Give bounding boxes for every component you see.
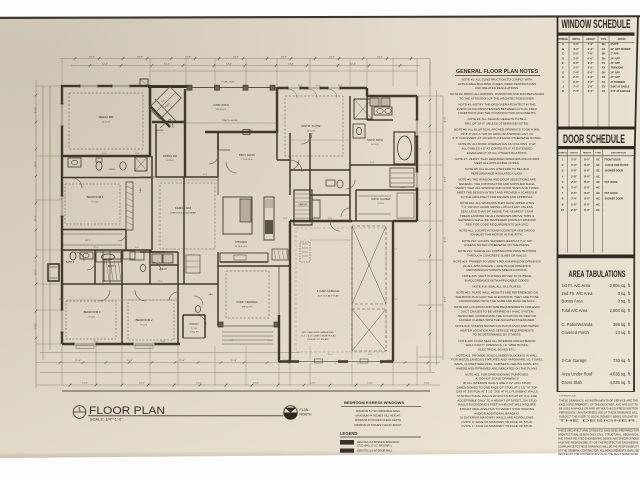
svg-text:7'-4": 7'-4"	[573, 89, 580, 93]
svg-text:388 sq. ft.: 388 sq. ft.	[613, 322, 631, 327]
svg-text:9' CLG.: 9' CLG.	[141, 325, 148, 327]
svg-text:HALL: HALL	[208, 293, 214, 296]
svg-text:TRANSOM: TRANSOM	[611, 67, 623, 70]
svg-text:FX: FX	[602, 80, 606, 84]
svg-text:NOTE #16: SEAL ALL SILL PLATES: NOTE #16: SEAL ALL SILL PLATES.	[472, 284, 521, 288]
svg-text:12'-4": 12'-4"	[417, 199, 422, 201]
svg-text:10'-8": 10'-8"	[443, 237, 445, 243]
svg-text:VERIFIED BY THE CONTRACTORS US: VERIFIED BY THE CONTRACTORS USING THE RE…	[558, 453, 639, 456]
svg-text:6'-0": 6'-0"	[588, 56, 595, 60]
svg-text:24'-8": 24'-8"	[377, 57, 383, 59]
svg-text:ELECTRICAL BOXES ETC.: ELECTRICAL BOXES ETC.	[478, 347, 515, 351]
svg-text:7'-4": 7'-4"	[573, 70, 580, 74]
svg-text:ENTRY: ENTRY	[156, 130, 164, 132]
svg-text:C. Patio/Veranda: C. Patio/Veranda	[562, 322, 594, 327]
svg-text:BEDROOM 2: BEDROOM 2	[136, 318, 153, 322]
svg-text:12'-4": 12'-4"	[338, 85, 343, 87]
svg-text:12'-4": 12'-4"	[328, 218, 333, 220]
svg-text:DENOTES 2x6 INTERIOR WALL: DENOTES 2x6 INTERIOR WALL	[357, 450, 393, 453]
svg-text:10' CLG.: 10' CLG.	[102, 122, 111, 124]
svg-text:WHERE NIGHT/FRAMES ARE INDICAT: WHERE NIGHT/FRAMES ARE INDICATED ON THE …	[456, 366, 538, 370]
svg-text:Total A/C Area: Total A/C Area	[562, 308, 589, 313]
svg-text:HEIGHT: HEIGHT	[586, 39, 595, 41]
svg-text:7'-0": 7'-0"	[588, 52, 595, 56]
svg-text:12'-4": 12'-4"	[370, 162, 375, 164]
svg-text:PER MANUFACTURER'S SPECIFICATI: PER MANUFACTURER'S SPECIFICATIONS.	[466, 268, 527, 272]
svg-text:FLOOR PLAN: FLOOR PLAN	[89, 405, 165, 417]
svg-text:24'-8": 24'-8"	[233, 57, 239, 59]
svg-text:W.I.C.: W.I.C.	[85, 240, 91, 242]
svg-text:Area Under Roof: Area Under Roof	[562, 372, 594, 377]
svg-text:AT DORMER: AT DORMER	[611, 81, 626, 84]
svg-text:AREA TABULATIONS: AREA TABULATIONS	[569, 269, 626, 279]
svg-text:12'-4": 12'-4"	[102, 64, 108, 66]
svg-text:SC: SC	[596, 163, 600, 167]
svg-text:SUBJECT THE USER TO LEGAL REME: SUBJECT THE USER TO LEGAL REMEDY BEING S…	[559, 415, 638, 418]
svg-text:12'-4": 12'-4"	[161, 341, 166, 343]
svg-text:3'-0": 3'-0"	[571, 163, 578, 167]
svg-text:TO BE DETERMINED BY OTHERS.: TO BE DETERMINED BY OTHERS.	[473, 333, 522, 337]
svg-text:SH: SH	[602, 70, 606, 74]
svg-text:12'-4": 12'-4"	[368, 354, 373, 356]
svg-text:12'-4": 12'-4"	[401, 187, 406, 189]
svg-text:HC: HC	[596, 191, 600, 195]
svg-text:ARCHITECTURAL DESIGN ONLY. CI: ARCHITECTURAL DESIGN ONLY. CIVIL, STRUCT…	[558, 433, 640, 436]
svg-text:BE USED IN WHOLE OR PART WITHO: BE USED IN WHOLE OR PART WITHOUT HIS EXP…	[559, 407, 638, 410]
svg-text:4,035 sq. ft.: 4,035 sq. ft.	[610, 380, 631, 385]
svg-text:3-Car Garage: 3-Car Garage	[562, 358, 588, 363]
svg-text:DOOR SCHEDULE: DOOR SCHEDULE	[563, 134, 625, 146]
svg-text:10' TILE CLG.: 10' TILE CLG.	[235, 246, 248, 248]
svg-text:THESE ARCHITECTURAL DRAWINGS H: THESE ARCHITECTURAL DRAWINGS HAVE BEEN P…	[558, 430, 639, 433]
svg-text:SYMBOL: SYMBOL	[558, 39, 568, 41]
svg-text:F: F	[562, 66, 564, 70]
svg-text:BEDROOM EGRESS WINDOWS: BEDROOM EGRESS WINDOWS	[344, 400, 404, 405]
svg-text:UNLESS NOTED OTHERWISE ON THE: UNLESS NOTED OTHERWISE ON THE PLANS.	[464, 243, 530, 247]
svg-text:THESE DRAWINGS, AS INSTRUMENTS: THESE DRAWINGS, AS INSTRUMENTS OF SERVIC…	[559, 400, 638, 403]
svg-text:12'-4": 12'-4"	[316, 85, 321, 87]
svg-text:EAVES AND 0" AT ALL OTHER LOC: EAVES AND 0" AT ALL OTHER LOCATIONS.	[467, 151, 528, 155]
svg-text:8'-0": 8'-0"	[584, 208, 591, 212]
svg-text:HC: HC	[596, 197, 600, 201]
svg-text:12'-4": 12'-4"	[229, 340, 234, 342]
svg-text:7' CEIL. HGT.: 7' CEIL. HGT.	[221, 82, 235, 84]
svg-text:DINING RM: DINING RM	[163, 154, 177, 158]
svg-text:14'-0": 14'-0"	[253, 383, 259, 385]
svg-text:12'-6": 12'-6"	[35, 215, 37, 221]
svg-text:12'-4": 12'-4"	[298, 85, 303, 87]
svg-text:8'-0": 8'-0"	[584, 174, 591, 178]
svg-text:SHOWER DOOR: SHOWER DOOR	[605, 170, 624, 173]
svg-text:2'-6": 2'-6"	[571, 202, 578, 206]
svg-text:AND RELATED REGULATIONS.: AND RELATED REGULATIONS.	[475, 86, 519, 90]
svg-text:FAMILY RM: FAMILY RM	[175, 206, 191, 210]
svg-text:THE DESIGNER.: THE DESIGNER.	[559, 419, 639, 422]
svg-text:BKFT. NOOK: BKFT. NOOK	[239, 153, 255, 157]
svg-text:2" APP: 2" APP	[611, 53, 619, 56]
svg-text:2'-0": 2'-0"	[571, 191, 578, 195]
svg-text:9' CLG.: 9' CLG.	[378, 203, 385, 205]
svg-text:6'-8" FOR EVERY 24" OF WIDTH U: 6'-8" FOR EVERY 24" OF WIDTH UNLESS OTHE…	[453, 136, 542, 140]
svg-text:SH: SH	[602, 56, 606, 60]
svg-text:REP. FOR CODE REQUIREMENTS (WA: REP. FOR CODE REQUIREMENTS (WA-2XC)	[466, 222, 529, 226]
svg-text:11'-0" CLG. AT 4" SLAB: 11'-0" CLG. AT 4" SLAB	[317, 295, 339, 298]
svg-text:14'-0": 14'-0"	[424, 383, 430, 385]
svg-text:2'-6": 2'-6"	[571, 180, 578, 184]
svg-text:12'-4": 12'-4"	[393, 249, 398, 251]
svg-text:THROUGH CONCRETE SLABS OR WALL: THROUGH CONCRETE SLABS OR WALLS.	[467, 253, 528, 257]
svg-text:WINDOW SCHEDULE: WINDOW SCHEDULE	[562, 19, 631, 31]
svg-text:0 sq. ft.: 0 sq. ft.	[618, 299, 631, 304]
svg-text:SC: SC	[596, 169, 600, 173]
svg-text:COORDINATED WITH THE SAME AND: COORDINATED WITH THE SAME AND BAND DETAI…	[459, 299, 536, 303]
svg-text:BEDROOM 3: BEDROOM 3	[84, 310, 101, 314]
svg-text:12'-4": 12'-4"	[226, 64, 232, 66]
svg-text:10'-8": 10'-8"	[443, 297, 445, 303]
svg-text:24'-8": 24'-8"	[329, 57, 335, 59]
svg-text:5'-0": 5'-0"	[588, 66, 595, 70]
svg-text:10' CLG.: 10' CLG.	[307, 131, 316, 133]
svg-text:MSTR. BATH: MSTR. BATH	[367, 138, 383, 142]
svg-text:12'-6": 12'-6"	[35, 161, 37, 167]
svg-text:12'-4": 12'-4"	[417, 149, 422, 151]
svg-text:BATH 3: BATH 3	[66, 261, 75, 264]
svg-text:12'-4": 12'-4"	[59, 299, 64, 301]
svg-text:3-CAR GARAGE: 3-CAR GARAGE	[317, 289, 340, 293]
svg-text:MSTR. SUITE: MSTR. SUITE	[301, 124, 320, 128]
svg-text:MINIMUM 24 INCHES CLEAR HEIGHT: MINIMUM 24 INCHES CLEAR HEIGHT	[354, 423, 402, 427]
svg-text:2'-0": 2'-0"	[573, 75, 580, 79]
svg-text:MIN. CLEAR INSIDE GARAGE DIMS.: MIN. CLEAR INSIDE GARAGE DIMS.	[302, 331, 335, 334]
svg-text:3'-0": 3'-0"	[573, 52, 580, 56]
svg-text:24" APP: 24" APP	[611, 62, 621, 65]
svg-text:PERMISSION. UNAUTHORIZED USE: PERMISSION. UNAUTHORIZED USE OF THESE DR…	[559, 411, 639, 414]
svg-text:MSTR. CLOSET: MSTR. CLOSET	[371, 197, 391, 201]
svg-text:12'-4": 12'-4"	[135, 247, 140, 249]
svg-text:12'-4": 12'-4"	[283, 218, 288, 220]
svg-text:12'-4": 12'-4"	[393, 299, 398, 301]
svg-text:SYMBOL: SYMBOL	[558, 153, 568, 155]
svg-text:1st Fr. A/C Area: 1st Fr. A/C Area	[562, 283, 591, 288]
svg-text:2'-0": 2'-0"	[573, 80, 580, 84]
svg-text:CONDITIONS AND THE CONSTRUCTIO: CONDITIONS AND THE CONSTRUCTION DOCUMENT…	[458, 111, 537, 115]
svg-text:24&#39;-0&#34;: 24&#39;-0&#34;	[222, 120, 237, 122]
svg-text:8'-0": 8'-0"	[584, 202, 591, 206]
svg-text:12'-4": 12'-4"	[135, 153, 140, 155]
svg-text:379 SQ. FT.: 379 SQ. FT.	[216, 109, 227, 111]
svg-text:PLAN: PLAN	[300, 408, 309, 412]
svg-text:FX: FX	[602, 66, 606, 70]
svg-text:D: D	[562, 56, 564, 60]
svg-text:12'-4": 12'-4"	[350, 64, 356, 66]
svg-text:10'-8": 10'-8"	[443, 117, 445, 123]
svg-text:12'-4": 12'-4"	[94, 341, 99, 343]
svg-text:9' CLG.: 9' CLG.	[89, 317, 96, 319]
svg-text:OPEN TILE & 20' TALL/BEAM: OPEN TILE & 20' TALL/BEAM	[170, 212, 196, 215]
svg-text:8'-0": 8'-0"	[584, 186, 591, 190]
svg-text:TO THE ATTENTION OF THE ARCHIT: TO THE ATTENTION OF THE ARCHITECT/DESIGN…	[459, 96, 534, 100]
svg-text:3'-0": 3'-0"	[571, 158, 578, 162]
svg-text:UTILITY: UTILITY	[159, 269, 168, 271]
svg-text:HC: HC	[596, 180, 600, 184]
svg-text:8'-0": 8'-0"	[584, 180, 591, 184]
svg-text:14'-0": 14'-0"	[139, 383, 145, 385]
svg-text:HC: HC	[596, 174, 600, 178]
svg-text:SC: SC	[596, 158, 600, 162]
svg-text:IN ACCORDANCE WITH APPLICABLE: IN ACCORDANCE WITH APPLICABLE CODES.	[465, 278, 530, 282]
svg-text:2'-0": 2'-0"	[588, 89, 595, 93]
svg-text:PERFORMANCE INSULATED GLASS.: PERFORMANCE INSULATED GLASS.	[471, 171, 524, 175]
svg-text:7' CLG.: 7' CLG.	[191, 328, 198, 330]
svg-text:12'-4": 12'-4"	[158, 281, 163, 283]
svg-text:THAT AT GABLE: THAT AT GABLE	[611, 86, 630, 89]
svg-text:7'-4": 7'-4"	[573, 85, 580, 89]
svg-text:12'-4": 12'-4"	[288, 64, 294, 66]
svg-text:OF THE GENERAL CONTRACTOR. AL: OF THE GENERAL CONTRACTOR. ALL MEASUREME…	[558, 449, 639, 452]
svg-text:FX: FX	[602, 85, 606, 89]
svg-text:FX: FX	[602, 61, 606, 65]
svg-text:9'-0": 9'-0"	[588, 61, 595, 65]
svg-text:BATH 2: BATH 2	[108, 265, 117, 268]
svg-text:2,804 sq. ft.: 2,804 sq. ft.	[610, 283, 631, 288]
svg-text:8'-0": 8'-0"	[584, 169, 591, 173]
svg-text:2'-4": 2'-4"	[571, 197, 578, 201]
svg-text:14'-0": 14'-0"	[196, 383, 202, 385]
svg-text:MIN. OF 10'-0" UNLESS OTHERWIS: MIN. OF 10'-0" UNLESS OTHERWISE NOTED.	[465, 121, 529, 125]
svg-text:CVRD. PATIO: CVRD. PATIO	[213, 104, 229, 107]
svg-text:24'-8": 24'-8"	[281, 57, 287, 59]
svg-text:21'-4" x 31'-8" CLEAR CONCRETE: 21'-4" x 31'-8" CLEAR CONCRETE SLAB	[301, 335, 337, 338]
svg-text:9'-0": 9'-0"	[588, 47, 595, 51]
svg-text:12'-4": 12'-4"	[203, 174, 208, 176]
svg-text:GENERAL FLOOR PLAN NOTES: GENERAL FLOOR PLAN NOTES	[456, 69, 539, 75]
svg-text:9'-0": 9'-0"	[588, 75, 595, 79]
svg-text:12'-4": 12'-4"	[102, 153, 107, 155]
svg-text:CVRD. VERANDA: CVRD. VERANDA	[236, 300, 258, 304]
svg-text:FX: FX	[602, 47, 606, 51]
svg-text:12'-6": 12'-6"	[35, 323, 37, 329]
svg-text:MEET ALL APPLICABLE CODES.: MEET ALL APPLICABLE CODES.	[474, 161, 520, 165]
svg-text:FX: FX	[602, 75, 606, 79]
svg-text:COMPLIANCE TO THESE DRAWINGS W: COMPLIANCE TO THESE DRAWINGS WILL BE THE…	[558, 445, 639, 448]
svg-text:3'-0": 3'-0"	[588, 80, 595, 84]
svg-text:14'-0": 14'-0"	[82, 383, 88, 385]
svg-text:AND THE RESPONSIBILITY OF THE: AND THE RESPONSIBILITY OF THE RESPECTIVE…	[558, 441, 639, 444]
svg-text:1 HOUR FIRE RATED: 1 HOUR FIRE RATED	[605, 164, 629, 167]
svg-text:TO THE ARCHITECT FOR REVIEW AN: TO THE ARCHITECT FOR REVIEW AND APPROVAL…	[461, 195, 534, 199]
svg-text:2,804 sq. ft.: 2,804 sq. ft.	[610, 308, 631, 313]
svg-text:HALL: HALL	[139, 187, 142, 193]
svg-text:E: E	[562, 61, 564, 65]
svg-text:11'-4": 11'-4"	[179, 360, 185, 362]
svg-text:2" APP: 2" APP	[611, 43, 619, 46]
svg-text:H: H	[562, 75, 564, 79]
svg-text:MINIMUM 20 INCHES CLEAR DEPTH: MINIMUM 20 INCHES CLEAR DEPTH	[355, 418, 401, 422]
svg-text:10: 10	[561, 208, 565, 212]
svg-text:13 sq. ft.: 13 sq. ft.	[615, 330, 631, 335]
svg-text:FRONT DOOR: FRONT DOOR	[605, 159, 621, 162]
svg-text:24" APP: 24" APP	[611, 71, 621, 74]
svg-text:AND OTHER RELATED ENGINEERING: AND OTHER RELATED ENGINEERING DESIGN ARE…	[558, 437, 639, 440]
svg-text:13 SQ. FT.: 13 SQ. FT.	[189, 332, 199, 334]
svg-text:2'-4": 2'-4"	[571, 186, 578, 190]
svg-text:FX: FX	[602, 89, 606, 93]
svg-text:STUD WALL (3 1/2" MASONRY): STUD WALL (3 1/2" MASONRY)	[357, 444, 392, 447]
svg-text:SH: SH	[602, 52, 606, 56]
svg-text:LEGEND: LEGEND	[340, 431, 357, 436]
svg-text:3'-0": 3'-0"	[573, 61, 580, 65]
svg-text:4,035 sq. ft.: 4,035 sq. ft.	[610, 372, 631, 377]
svg-text:EXCLUSIVE PROPERTY OF THE DESI: EXCLUSIVE PROPERTY OF THE DESIGNER, AND …	[559, 403, 638, 406]
svg-text:EXHAUST FAN MOTOR IN THE ATTIC: EXHAUST FAN MOTOR IN THE ATTIC.	[470, 233, 523, 237]
svg-text:PANTRY: PANTRY	[299, 203, 308, 206]
svg-text:6'-0": 6'-0"	[588, 70, 595, 74]
svg-text:PKT. DOOR: PKT. DOOR	[605, 192, 618, 195]
svg-text:TYPE: TYPE	[595, 153, 601, 155]
svg-text:3'x5' AT GARAGE: 3'x5' AT GARAGE	[611, 90, 631, 93]
svg-text:24" APP: 24" APP	[611, 57, 621, 60]
svg-text:2'-8": 2'-8"	[571, 169, 578, 173]
svg-text:9' CLG.: 9' CLG.	[92, 202, 99, 204]
svg-text:NOTES: NOTES	[618, 39, 626, 41]
svg-text:SHOWER DOOR: SHOWER DOOR	[605, 198, 624, 201]
svg-text:WIDTH: WIDTH	[572, 39, 580, 41]
svg-text:8'-0": 8'-0"	[584, 191, 591, 195]
svg-text:11'-4": 11'-4"	[127, 360, 133, 362]
svg-text:HC: HC	[596, 202, 600, 206]
svg-text:8'-0": 8'-0"	[584, 197, 591, 201]
svg-text:PORCH: PORCH	[190, 323, 199, 326]
svg-text:12'-4": 12'-4"	[59, 199, 64, 201]
svg-text:2nd Flr. A/C Area: 2nd Flr. A/C Area	[562, 291, 594, 296]
svg-text:OVR'S: 1" FACE OF MASONRY TO F: OVR'S: 1" FACE OF MASONRY TO FACE OF STU…	[461, 424, 533, 428]
svg-text:8'-0": 8'-0"	[584, 158, 591, 162]
svg-text:10' CLG.: 10' CLG.	[371, 144, 379, 146]
svg-text:11'-4": 11'-4"	[231, 360, 237, 362]
svg-text:HC: HC	[596, 186, 600, 190]
svg-text:12'-4": 12'-4"	[164, 64, 170, 66]
svg-text:Bonus Area: Bonus Area	[562, 299, 584, 304]
svg-text:14'-0": 14'-0"	[367, 383, 373, 385]
svg-text:COPYRIGHT 2010: COPYRIGHT 2010	[559, 396, 577, 398]
svg-text:730 sq. ft.: 730 sq. ft.	[613, 358, 631, 363]
svg-text:10'-8": 10'-8"	[443, 177, 445, 183]
svg-text:34" APP. DIVIDER: 34" APP. DIVIDER	[611, 48, 631, 51]
svg-text:DESCRIPTION: DESCRIPTION	[611, 153, 626, 155]
svg-text:PWDR: PWDR	[109, 169, 116, 171]
svg-text:12'-6": 12'-6"	[35, 269, 37, 275]
svg-text:HEIGHT: HEIGHT	[583, 153, 592, 155]
svg-text:2'-8": 2'-8"	[571, 174, 578, 178]
svg-text:388 SQ. FT.: 388 SQ. FT.	[242, 307, 253, 309]
svg-text:24'-8": 24'-8"	[137, 57, 143, 59]
svg-text:7' TILE CLG.: 7' TILE CLG.	[241, 159, 253, 161]
svg-text:12'-6": 12'-6"	[35, 107, 37, 113]
svg-text:24'-8": 24'-8"	[89, 57, 95, 59]
svg-text:12'-4": 12'-4"	[248, 130, 253, 132]
svg-text:BEDROOM 5: BEDROOM 5	[87, 195, 104, 199]
svg-text:3'-0": 3'-0"	[588, 85, 595, 89]
svg-text:Covered Porch: Covered Porch	[562, 330, 590, 335]
svg-text:MINIMUM 5.7 SF OPENABLE AREA: MINIMUM 5.7 SF OPENABLE AREA	[356, 409, 400, 413]
svg-text:SCALE: 1/4"=1'-0": SCALE: 1/4"=1'-0"	[90, 417, 123, 422]
svg-text:11'-4": 11'-4"	[75, 360, 81, 362]
svg-text:MAXIMUM 44 INCHES SILL HEIGHT: MAXIMUM 44 INCHES SILL HEIGHT	[356, 414, 401, 418]
svg-text:0 sq. ft.: 0 sq. ft.	[618, 291, 631, 296]
svg-text:3'-0": 3'-0"	[573, 56, 580, 60]
svg-text:7'-0": 7'-0"	[588, 42, 595, 46]
svg-text:3'-0": 3'-0"	[573, 66, 580, 70]
svg-text:Gross Slab: Gross Slab	[562, 380, 583, 385]
svg-text:4'-0": 4'-0"	[573, 47, 580, 51]
svg-text:B: B	[562, 47, 564, 51]
svg-text:12'-4": 12'-4"	[328, 354, 333, 356]
svg-text:4'-0": 4'-0"	[573, 42, 580, 46]
svg-text:KITCHEN: KITCHEN	[235, 240, 247, 244]
svg-text:TYPE: TYPE	[601, 39, 607, 41]
svg-text:12'-4": 12'-4"	[268, 340, 273, 342]
svg-text:MEDIA RM: MEDIA RM	[99, 115, 114, 119]
svg-text:12'-4": 12'-4"	[102, 281, 107, 283]
svg-text:NORTH: NORTH	[300, 413, 313, 417]
svg-text:10' CLG.: 10' CLG.	[166, 160, 174, 162]
svg-text:14'-0": 14'-0"	[310, 383, 316, 385]
svg-text:24" APP: 24" APP	[611, 76, 621, 79]
svg-text:WIDTH: WIDTH	[570, 153, 578, 155]
svg-text:12'-4": 12'-4"	[94, 247, 99, 249]
svg-text:2'-8": 2'-8"	[571, 208, 578, 212]
svg-text:HC: HC	[596, 208, 600, 212]
svg-text:8'-0": 8'-0"	[584, 163, 591, 167]
svg-text:LARGER CHASES WITH THE ARCHITE: LARGER CHASES WITH THE ARCHITECT/DESIGNE…	[459, 318, 535, 322]
svg-text:24'-8": 24'-8"	[185, 57, 191, 59]
svg-text:PKT. DOOR: PKT. DOOR	[605, 181, 618, 184]
svg-text:SH: SH	[602, 42, 606, 46]
svg-text:LEVELED TOP ESCAPE: LEVELED TOP ESCAPE	[307, 338, 329, 341]
